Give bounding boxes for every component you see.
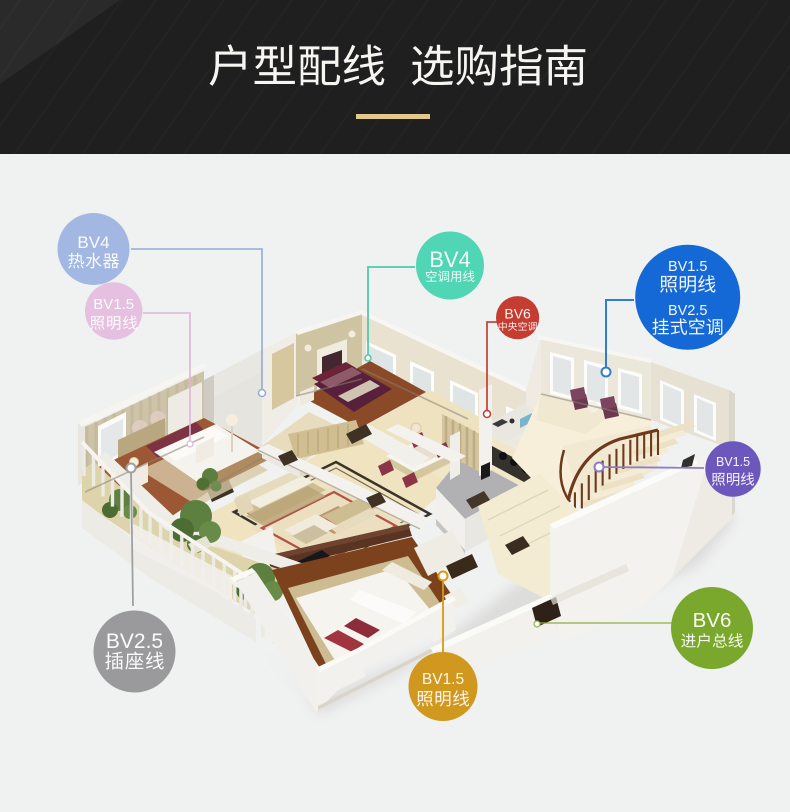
- svg-text:BV1.5: BV1.5: [716, 455, 750, 469]
- svg-text:BV6: BV6: [693, 609, 732, 632]
- svg-text:BV2.5: BV2.5: [668, 303, 708, 319]
- svg-text:BV1.5: BV1.5: [422, 671, 464, 688]
- svg-text:BV4: BV4: [429, 247, 471, 272]
- svg-text:BV2.5: BV2.5: [106, 630, 163, 653]
- svg-text:BV1.5: BV1.5: [93, 296, 134, 313]
- svg-text:BV1.5: BV1.5: [668, 259, 708, 275]
- svg-text:BV4: BV4: [77, 233, 109, 252]
- svg-text:BV6: BV6: [504, 306, 531, 322]
